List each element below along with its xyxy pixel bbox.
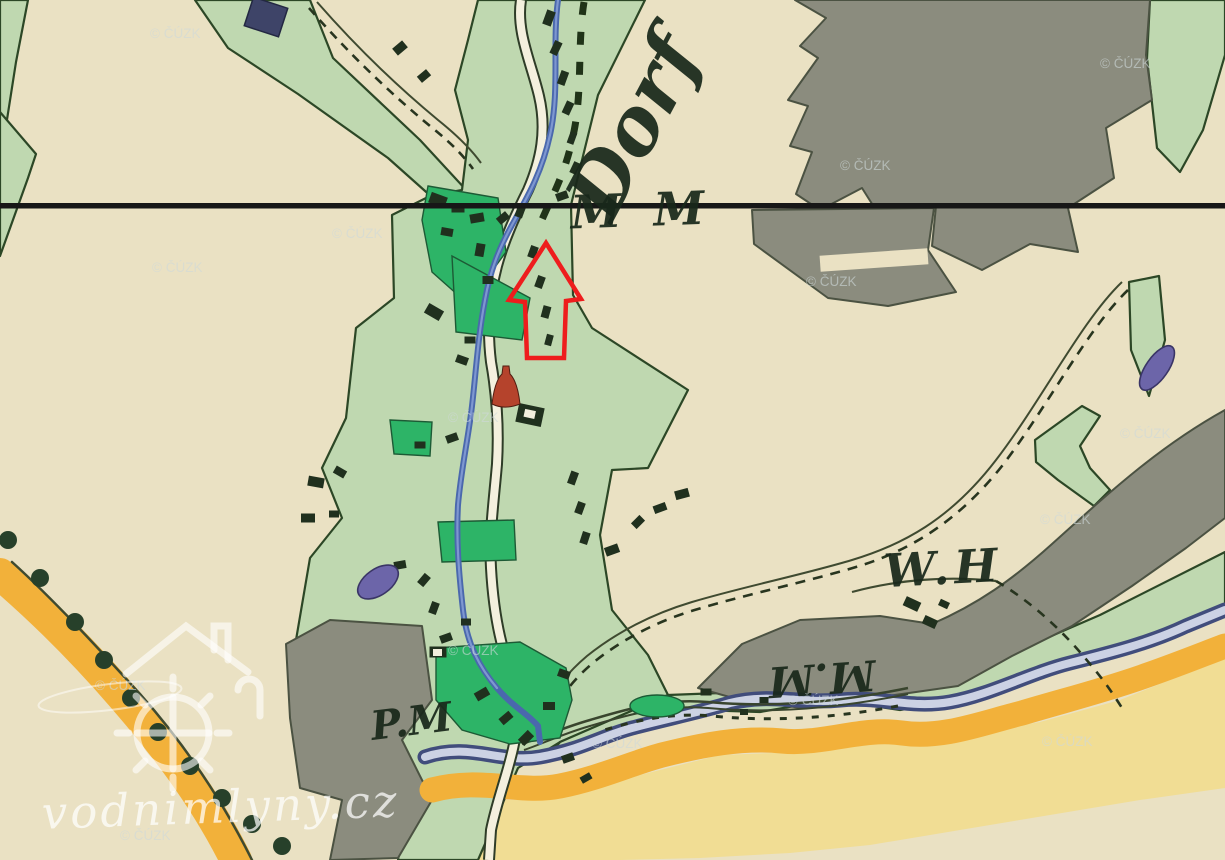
cuzk-watermark: © ČÚZK bbox=[332, 226, 382, 241]
map-canvas[interactable]: Dorf M M W.H M.M P.M © ČÚZK© ČÚZK© ČÚZK©… bbox=[0, 0, 1225, 860]
map-viewport[interactable]: Dorf M M W.H M.M P.M © ČÚZK© ČÚZK© ČÚZK©… bbox=[0, 0, 1225, 860]
cuzk-watermark: © ČÚZK bbox=[1120, 426, 1170, 441]
building bbox=[701, 689, 712, 696]
tree bbox=[273, 837, 291, 855]
building bbox=[461, 619, 471, 626]
cuzk-watermark: © ČÚZK bbox=[150, 26, 200, 41]
cuzk-watermark: © ČÚZK bbox=[592, 736, 642, 751]
cuzk-watermark: © ČÚZK bbox=[1040, 512, 1090, 527]
label-wh: W.H bbox=[882, 538, 1004, 598]
cuzk-watermark: © ČÚZK bbox=[840, 158, 890, 173]
tree bbox=[31, 569, 49, 587]
building bbox=[301, 514, 315, 523]
cuzk-watermark: © ČÚZK bbox=[788, 693, 838, 708]
building bbox=[415, 442, 426, 449]
cuzk-watermark: © ČÚZK bbox=[448, 643, 498, 658]
building bbox=[760, 697, 769, 703]
cuzk-watermark: © ČÚZK bbox=[806, 274, 856, 289]
tree bbox=[66, 613, 84, 631]
tree bbox=[95, 651, 113, 669]
building bbox=[329, 511, 339, 518]
label-mm-line: M M bbox=[568, 181, 714, 240]
cuzk-watermark: © ČÚZK bbox=[448, 410, 498, 425]
building bbox=[465, 337, 476, 344]
cuzk-watermark: © ČÚZK bbox=[1100, 56, 1150, 71]
cuzk-watermark: © ČÚZK bbox=[1042, 734, 1092, 749]
building bbox=[543, 702, 555, 710]
cuzk-watermark: © ČÚZK bbox=[152, 260, 202, 275]
building bbox=[740, 709, 748, 715]
building bbox=[483, 276, 494, 284]
